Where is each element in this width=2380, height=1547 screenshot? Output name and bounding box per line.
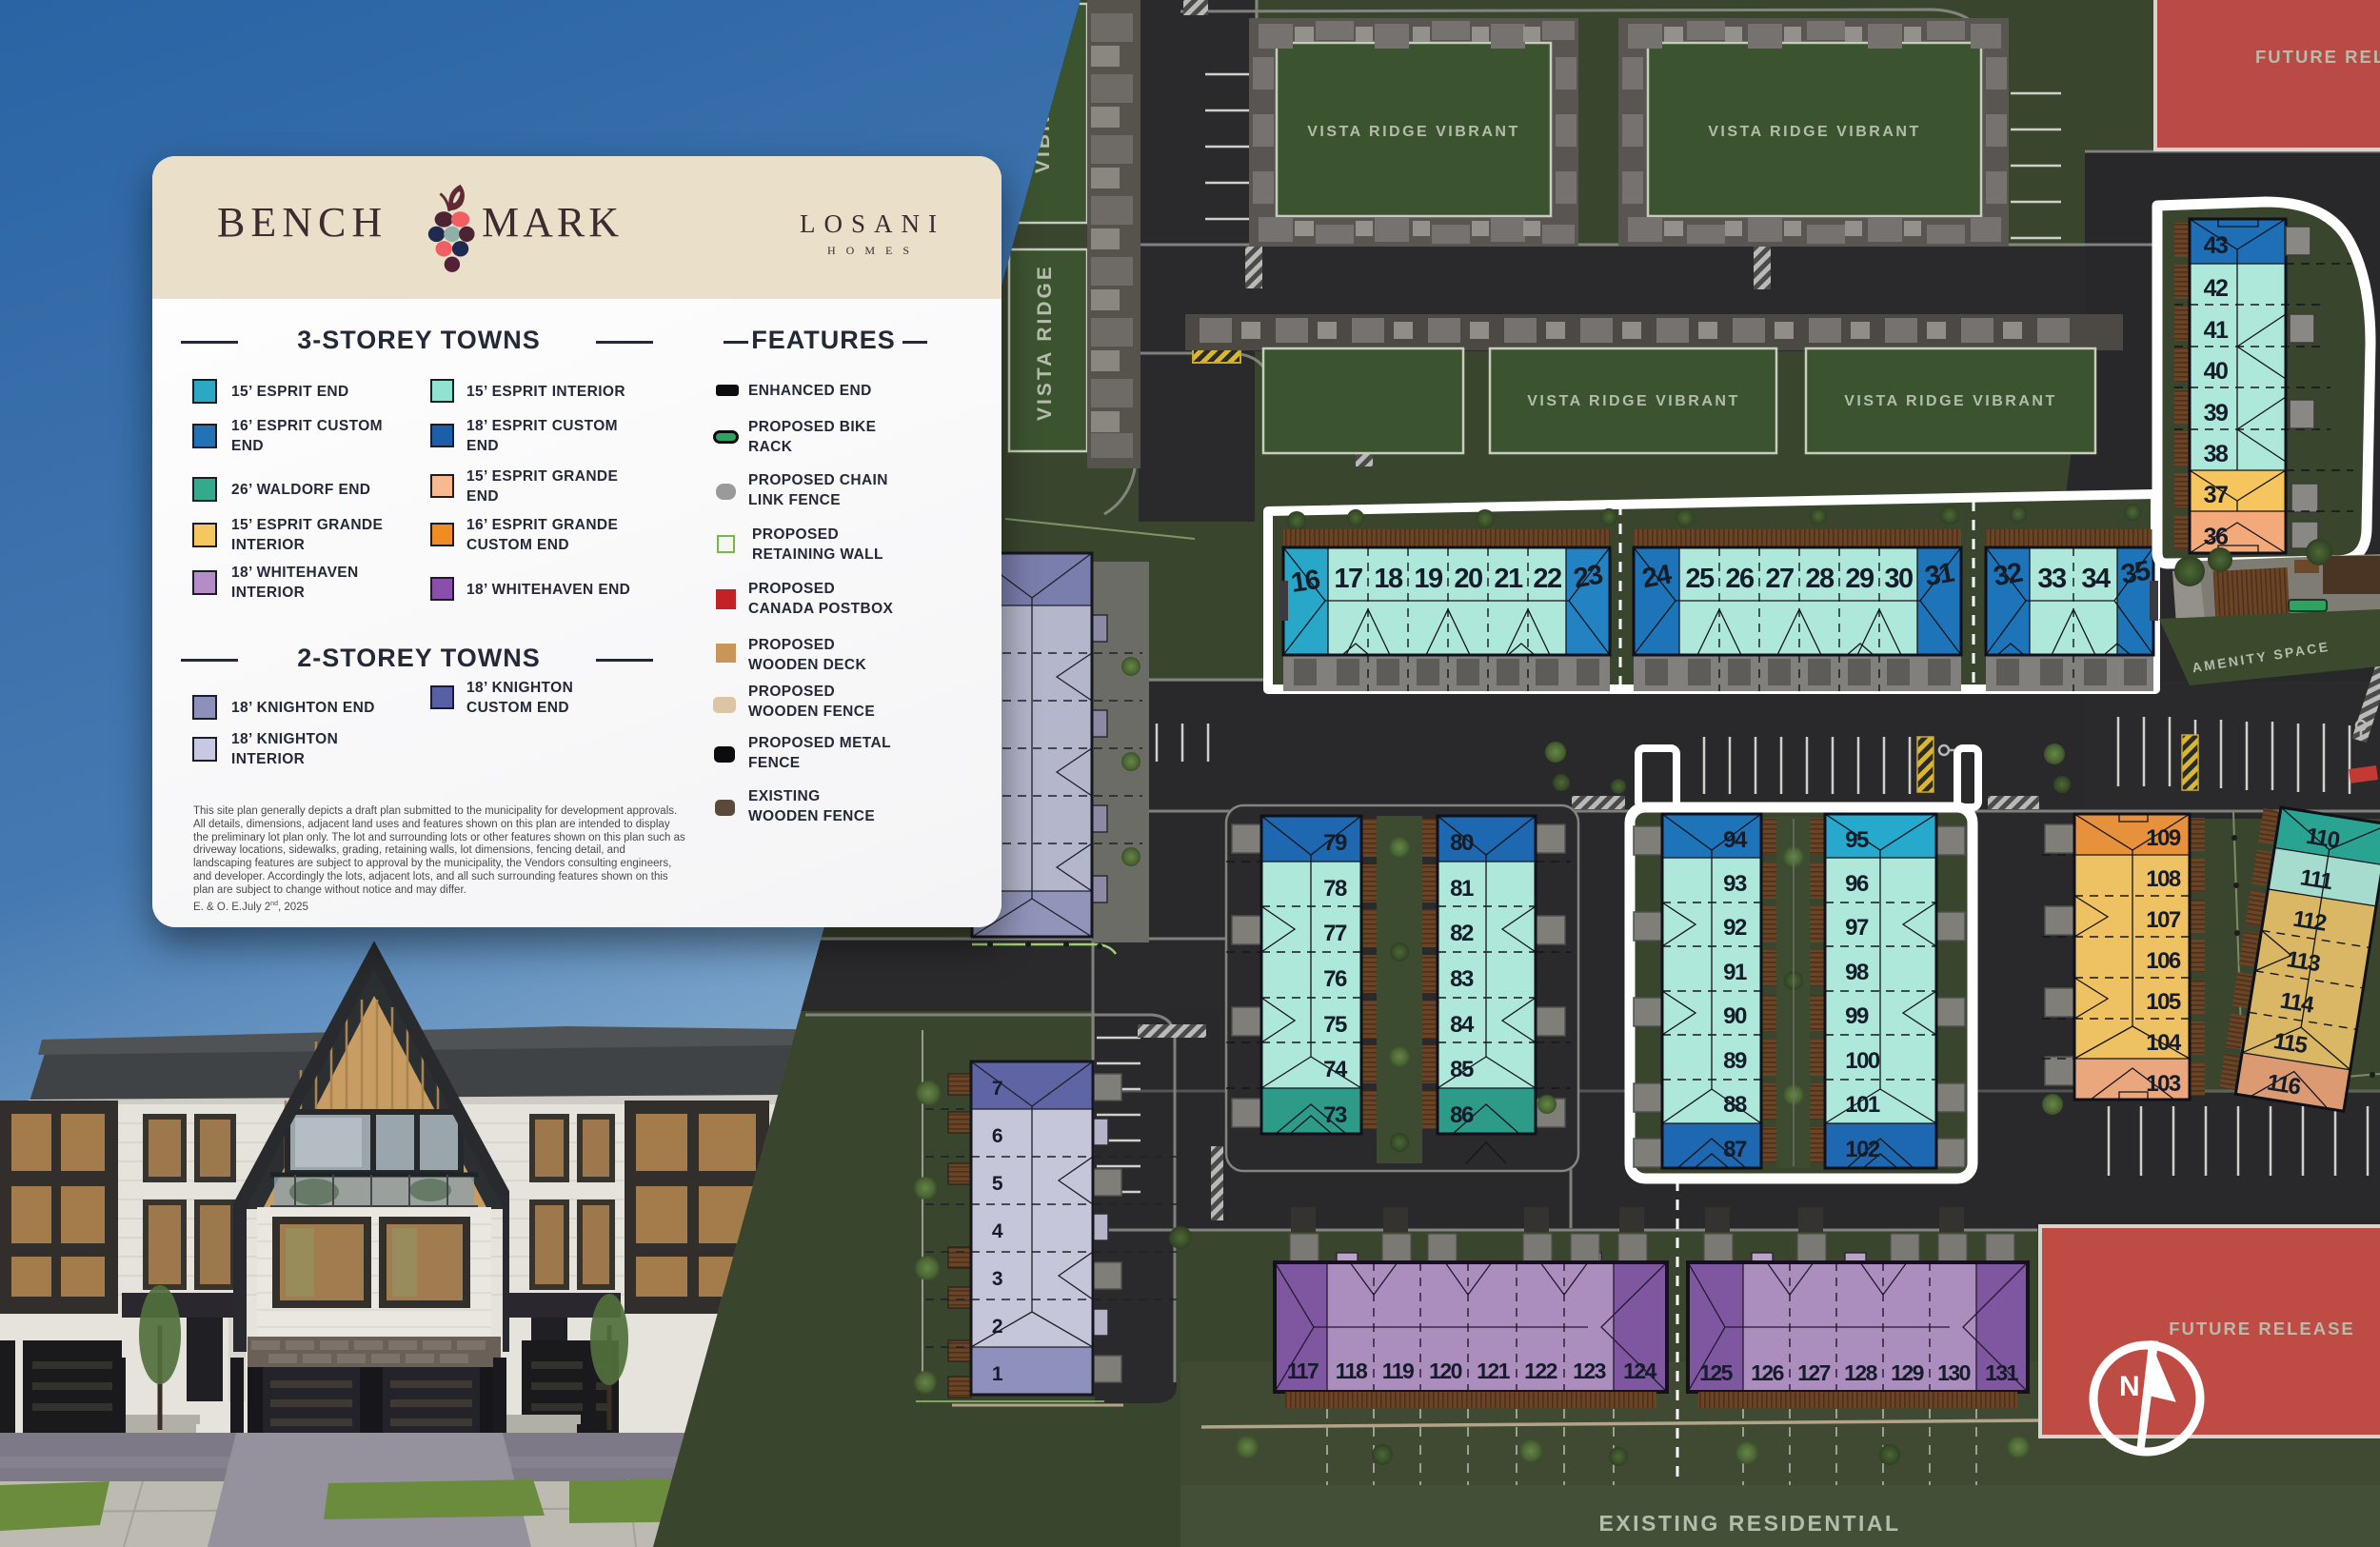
svg-text:124: 124 xyxy=(1623,1359,1657,1383)
svg-text:99: 99 xyxy=(1845,1003,1869,1029)
svg-text:112: 112 xyxy=(2291,906,2329,937)
svg-text:129: 129 xyxy=(1891,1360,1924,1385)
svg-text:114: 114 xyxy=(2278,988,2316,1019)
svg-text:32: 32 xyxy=(1992,558,2025,593)
svg-text:25: 25 xyxy=(1685,564,1715,594)
svg-text:107: 107 xyxy=(2146,907,2181,933)
svg-text:128: 128 xyxy=(1844,1360,1878,1385)
svg-text:3: 3 xyxy=(992,1268,1002,1290)
svg-text:116: 116 xyxy=(2265,1069,2302,1100)
svg-text:120: 120 xyxy=(1429,1359,1462,1383)
svg-text:73: 73 xyxy=(1323,1102,1347,1128)
svg-text:78: 78 xyxy=(1323,876,1347,902)
svg-text:94: 94 xyxy=(1723,827,1748,853)
svg-text:119: 119 xyxy=(1382,1359,1414,1383)
svg-text:84: 84 xyxy=(1450,1012,1475,1038)
svg-text:26: 26 xyxy=(1725,564,1755,594)
svg-text:83: 83 xyxy=(1450,966,1474,992)
svg-text:93: 93 xyxy=(1723,871,1747,897)
svg-text:EXISTING RESIDENTIAL: EXISTING RESIDENTIAL xyxy=(1598,1511,1900,1536)
svg-text:18: 18 xyxy=(1374,564,1403,594)
svg-text:28: 28 xyxy=(1805,564,1835,594)
svg-text:VISTA RIDGE VIBRANT: VISTA RIDGE VIBRANT xyxy=(1527,393,1740,409)
svg-text:85: 85 xyxy=(1450,1057,1474,1082)
svg-text:29: 29 xyxy=(1845,564,1874,594)
svg-text:125: 125 xyxy=(1699,1360,1734,1385)
svg-text:43: 43 xyxy=(2204,232,2228,259)
svg-text:87: 87 xyxy=(1723,1137,1747,1162)
svg-text:127: 127 xyxy=(1797,1360,1831,1385)
svg-text:90: 90 xyxy=(1723,1003,1747,1029)
svg-text:98: 98 xyxy=(1845,960,1869,985)
svg-text:34: 34 xyxy=(2081,564,2111,594)
svg-text:41: 41 xyxy=(2204,317,2229,344)
svg-text:108: 108 xyxy=(2146,866,2181,892)
svg-text:121: 121 xyxy=(1477,1359,1511,1383)
svg-text:91: 91 xyxy=(1723,960,1747,985)
svg-text:117: 117 xyxy=(1287,1359,1319,1383)
svg-text:109: 109 xyxy=(2146,825,2181,851)
svg-text:21: 21 xyxy=(1494,564,1523,594)
svg-text:106: 106 xyxy=(2146,948,2181,974)
svg-text:118: 118 xyxy=(1336,1359,1368,1383)
svg-text:96: 96 xyxy=(1845,871,1869,897)
svg-text:111: 111 xyxy=(2298,864,2334,895)
svg-text:79: 79 xyxy=(1323,830,1347,856)
svg-text:100: 100 xyxy=(1845,1048,1880,1074)
svg-text:81: 81 xyxy=(1450,876,1474,902)
svg-text:38: 38 xyxy=(2204,441,2229,467)
svg-text:101: 101 xyxy=(1845,1092,1880,1118)
svg-text:75: 75 xyxy=(1323,1012,1347,1038)
svg-text:7: 7 xyxy=(992,1078,1002,1100)
svg-text:36: 36 xyxy=(2204,524,2228,550)
svg-text:123: 123 xyxy=(1573,1359,1606,1383)
svg-text:110: 110 xyxy=(2304,823,2341,854)
svg-text:126: 126 xyxy=(1751,1360,1784,1385)
svg-text:88: 88 xyxy=(1723,1092,1747,1118)
svg-text:130: 130 xyxy=(1937,1360,1971,1385)
svg-text:131: 131 xyxy=(1985,1360,2019,1385)
svg-text:105: 105 xyxy=(2146,989,2181,1015)
svg-text:115: 115 xyxy=(2271,1028,2309,1059)
svg-text:86: 86 xyxy=(1450,1102,1474,1128)
svg-text:92: 92 xyxy=(1723,915,1747,941)
svg-text:FUTURE RELEASE: FUTURE RELEASE xyxy=(2255,47,2380,67)
svg-text:95: 95 xyxy=(1845,827,1869,853)
svg-text:N: N xyxy=(2119,1371,2140,1402)
svg-text:40: 40 xyxy=(2204,358,2228,385)
svg-text:2: 2 xyxy=(992,1316,1002,1338)
svg-text:VISTA RIDGE VIBRANT: VISTA RIDGE VIBRANT xyxy=(1844,393,2057,409)
svg-text:103: 103 xyxy=(2146,1071,2181,1097)
svg-text:76: 76 xyxy=(1323,966,1347,992)
svg-text:122: 122 xyxy=(1524,1359,1557,1383)
svg-text:30: 30 xyxy=(1884,564,1913,594)
svg-text:VISTA RIDGE: VISTA RIDGE xyxy=(1034,264,1056,421)
svg-text:17: 17 xyxy=(1334,564,1362,594)
svg-text:39: 39 xyxy=(2204,400,2228,426)
svg-text:27: 27 xyxy=(1765,564,1794,594)
svg-text:42: 42 xyxy=(2204,275,2228,302)
svg-text:16: 16 xyxy=(1289,565,1322,599)
svg-text:113: 113 xyxy=(2285,946,2322,977)
svg-text:82: 82 xyxy=(1450,921,1474,946)
svg-text:20: 20 xyxy=(1454,564,1482,594)
svg-text:VISTA RIDGE VIBRANT: VISTA RIDGE VIBRANT xyxy=(1708,124,1921,140)
svg-text:VISTA RIDGE VIBRANT: VISTA RIDGE VIBRANT xyxy=(1307,124,1520,140)
svg-text:97: 97 xyxy=(1845,915,1869,941)
svg-text:77: 77 xyxy=(1323,921,1347,946)
svg-text:37: 37 xyxy=(2204,482,2228,508)
svg-text:74: 74 xyxy=(1323,1057,1348,1082)
svg-text:104: 104 xyxy=(2146,1030,2182,1056)
svg-text:80: 80 xyxy=(1450,830,1474,856)
svg-text:33: 33 xyxy=(2037,564,2067,594)
svg-text:22: 22 xyxy=(1533,564,1561,594)
svg-text:6: 6 xyxy=(992,1125,1002,1147)
svg-text:FUTURE RELEASE: FUTURE RELEASE xyxy=(2169,1319,2355,1339)
svg-text:89: 89 xyxy=(1723,1048,1747,1074)
svg-text:19: 19 xyxy=(1414,564,1443,594)
svg-text:102: 102 xyxy=(1845,1137,1880,1162)
